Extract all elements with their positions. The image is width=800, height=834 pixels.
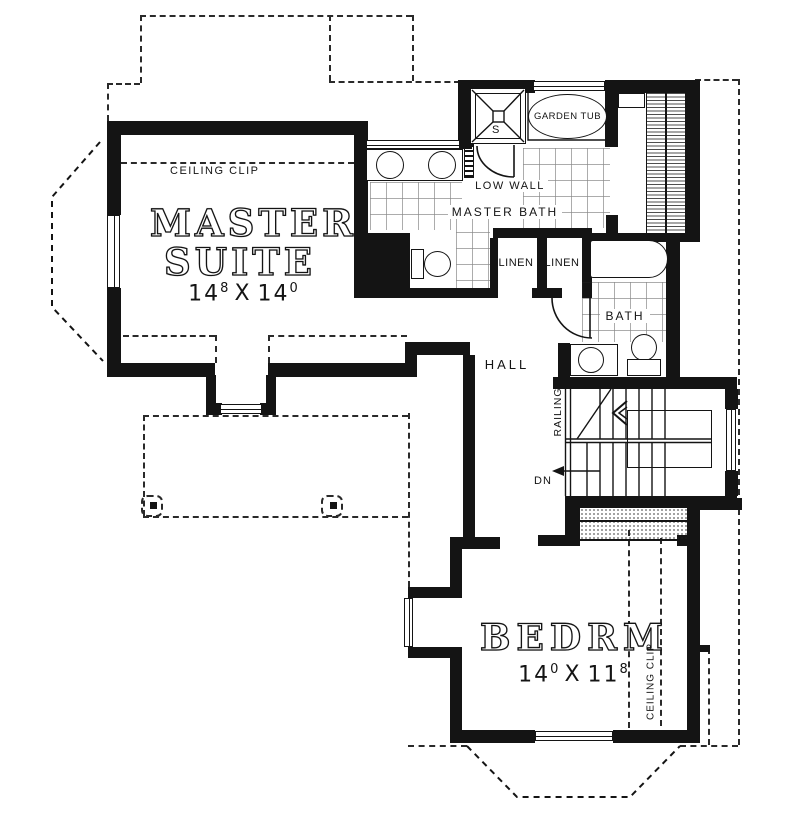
floor-plan: MASTER SUITE 148X140 CEILING CLIP GARDEN… xyxy=(0,0,800,834)
room-title-master-line2: SUITE xyxy=(150,240,330,284)
ceiling-clip-label: CEILING CLIP xyxy=(646,627,657,737)
linen-label: LINEN xyxy=(540,257,584,269)
stair-landing-rail xyxy=(566,439,712,443)
plan-annotations xyxy=(0,0,800,834)
room-label-bath: BATH xyxy=(600,309,650,323)
down-arrow-head xyxy=(552,466,564,476)
bay-roof-line xyxy=(52,142,103,361)
room-dimensions-master: 148X140 xyxy=(148,281,338,306)
room-dimensions-bedroom: 140X118 xyxy=(478,662,668,687)
down-label: DN xyxy=(534,475,552,487)
bath-door-arc xyxy=(552,298,592,338)
room-label-master-bath: MASTER BATH xyxy=(448,205,562,219)
linen-label: LINEN xyxy=(494,257,538,269)
stair-tread xyxy=(587,443,665,496)
stair-tread xyxy=(600,389,665,439)
garden-tub-label: GARDEN TUB xyxy=(527,111,608,122)
ceiling-clip-label: CEILING CLIP xyxy=(170,165,260,177)
stair-break-line xyxy=(577,389,611,439)
shower-door-arc xyxy=(477,146,514,177)
room-title-master-line1: MASTER xyxy=(150,201,330,245)
bay-roof-line xyxy=(467,746,680,797)
low-wall-label: LOW WALL xyxy=(472,180,548,192)
railing-label: RAILING xyxy=(552,381,564,443)
room-label-hall: HALL xyxy=(472,357,542,372)
shower-label: S xyxy=(492,124,499,136)
shower-drain xyxy=(493,111,504,122)
room-title-bedroom: BEDRM xyxy=(480,617,665,659)
